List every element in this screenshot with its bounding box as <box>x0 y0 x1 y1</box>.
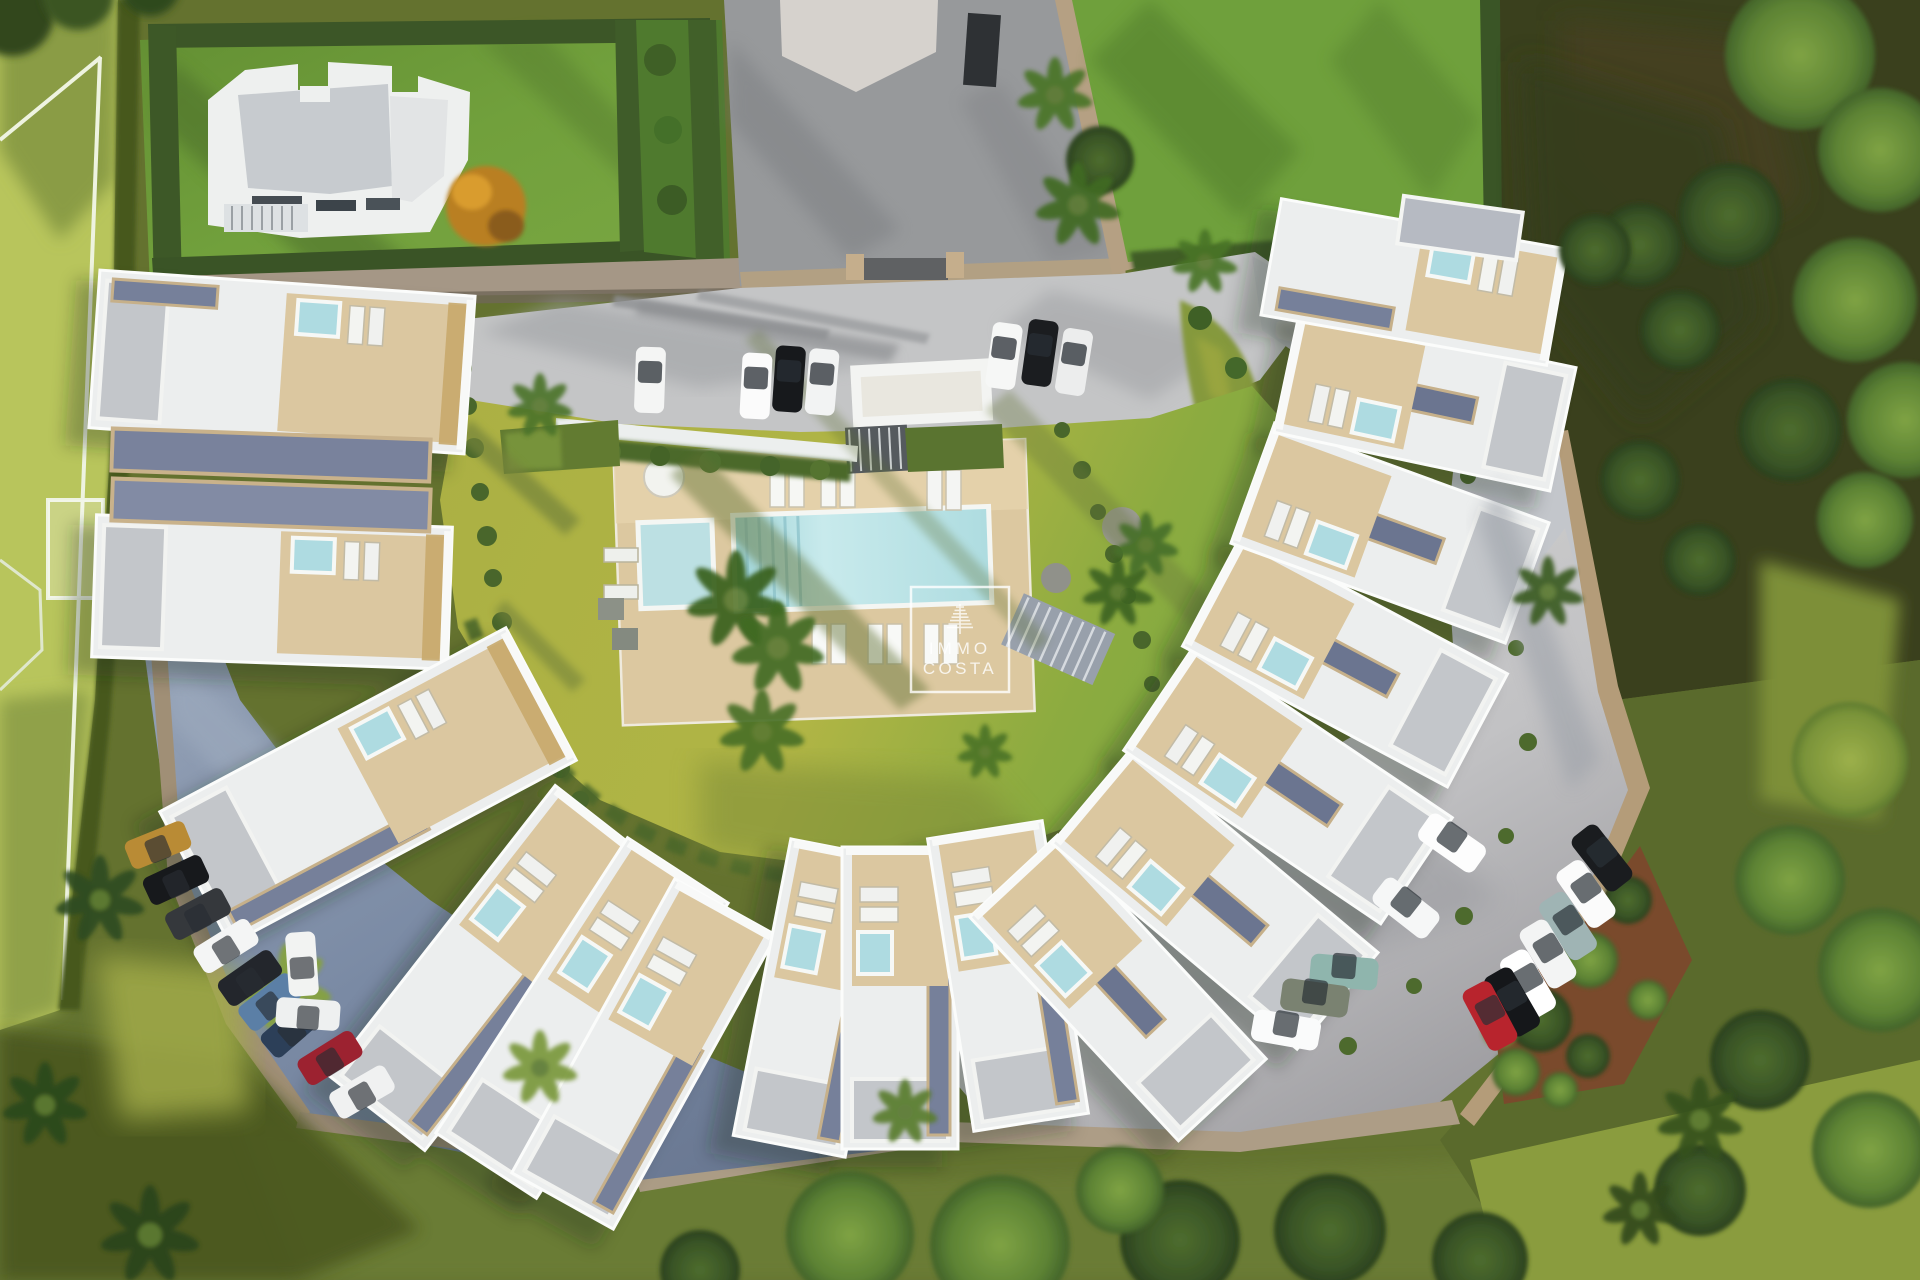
svg-text:COSTA: COSTA <box>923 659 997 678</box>
svg-text:IMMO: IMMO <box>929 639 991 658</box>
